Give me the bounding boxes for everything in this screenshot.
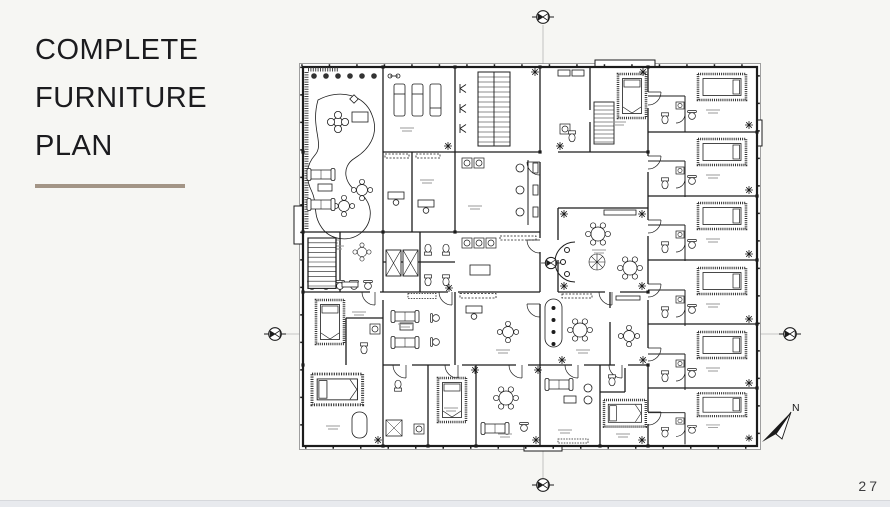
- section-marker-top: [532, 11, 554, 24]
- section-marker-left: [264, 328, 286, 341]
- slide-canvas: COMPLETE FURNITURE PLAN: [0, 0, 890, 507]
- north-arrow-icon: [762, 412, 791, 442]
- north-arrow: N: [762, 402, 800, 442]
- section-marker-bottom: [532, 479, 554, 492]
- footer-bar: [0, 500, 890, 507]
- north-label: N: [792, 402, 800, 414]
- page-number: 27: [858, 478, 880, 494]
- section-marker-right: [779, 328, 801, 341]
- floor-plan-figure: N: [0, 0, 890, 507]
